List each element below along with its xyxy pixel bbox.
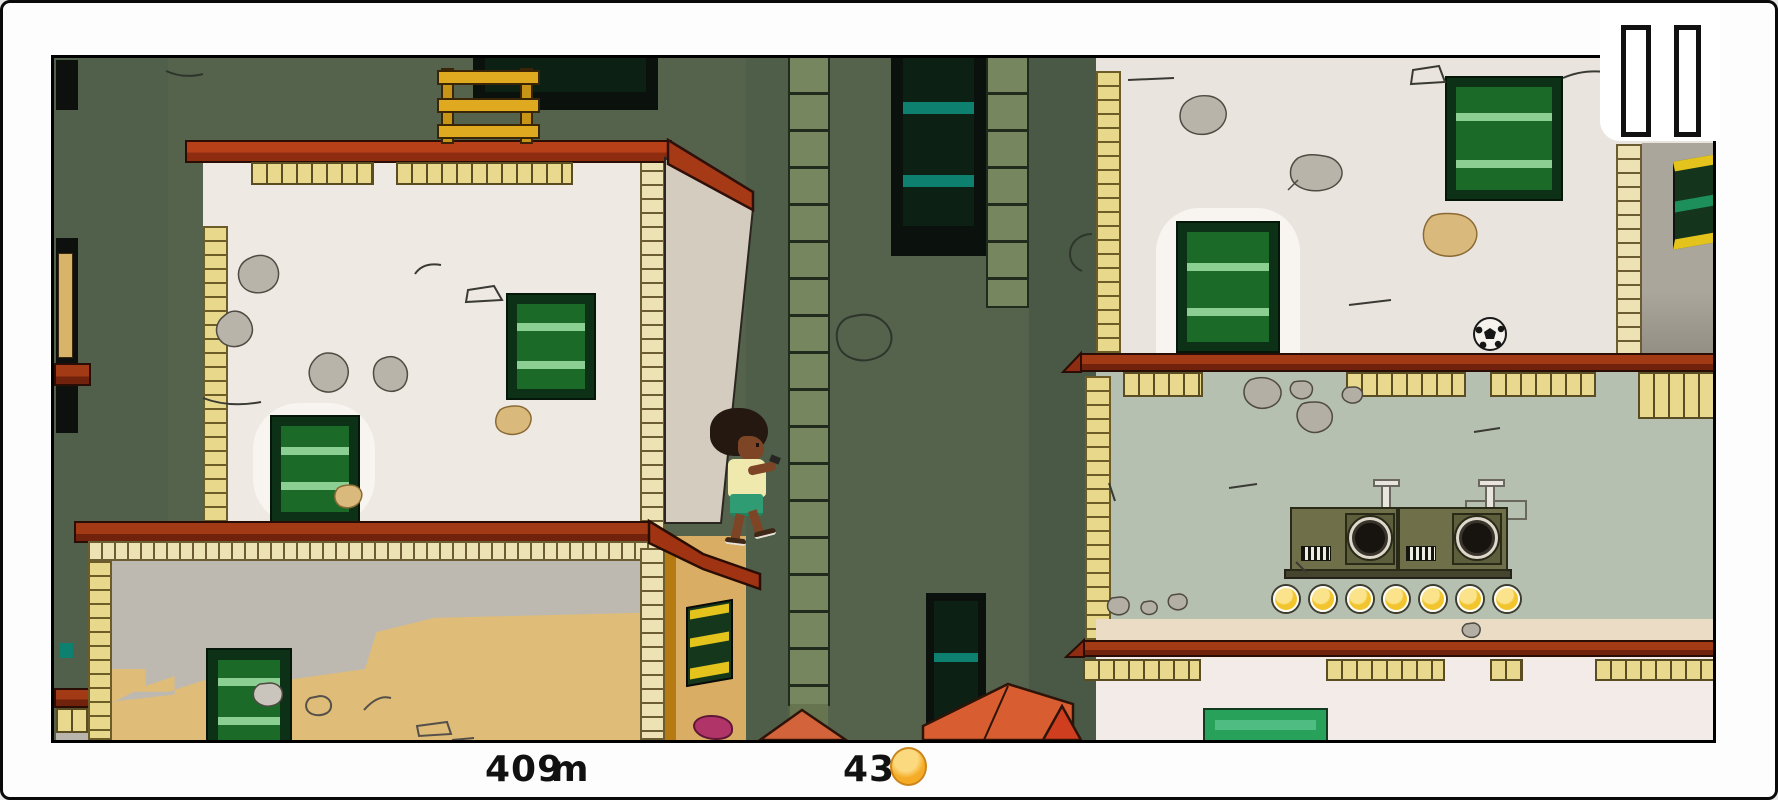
game-viewport[interactable] <box>51 55 1716 743</box>
pebble <box>1462 623 1480 637</box>
stone-outline-arc <box>1070 234 1092 271</box>
pebble <box>1141 601 1157 614</box>
stone <box>217 311 253 347</box>
stone <box>238 255 278 292</box>
squiggle <box>1128 78 1174 80</box>
pause-button[interactable] <box>1600 3 1720 141</box>
stone <box>253 683 282 706</box>
character-sandal <box>725 537 747 547</box>
pebble <box>1168 594 1187 610</box>
pause-icon <box>1674 25 1701 137</box>
squiggle <box>1109 428 1500 572</box>
stone <box>1297 402 1332 432</box>
squiggle <box>364 697 474 740</box>
squiggle <box>166 71 203 76</box>
pebble <box>1108 597 1130 615</box>
stone <box>309 353 348 392</box>
stone <box>1180 96 1226 135</box>
coin <box>1494 586 1520 612</box>
rooftop-small <box>760 710 846 740</box>
tan-patch <box>496 406 531 434</box>
squiggle <box>1349 300 1391 305</box>
coin <box>1347 586 1373 612</box>
stone <box>1342 387 1362 403</box>
tan-patch <box>1423 213 1476 256</box>
coin <box>1273 586 1299 612</box>
soccer-ball <box>1472 316 1508 352</box>
stone <box>1288 155 1342 191</box>
coin <box>1457 586 1483 612</box>
character-eye <box>756 443 759 447</box>
stone <box>373 357 407 392</box>
tan-patch <box>335 485 362 508</box>
coin-count: 43 <box>843 749 895 790</box>
ledge-tip <box>1066 640 1084 657</box>
doodle-layer <box>54 58 1716 740</box>
squiggle-trapezoid <box>466 286 502 302</box>
coin <box>1310 586 1336 612</box>
character-face <box>738 436 764 461</box>
stone <box>1290 381 1312 399</box>
coin <box>1420 586 1446 612</box>
ledge-tip <box>1063 353 1081 372</box>
coin-icon <box>890 747 927 786</box>
pause-icon <box>1621 25 1651 137</box>
squiggle <box>203 398 261 404</box>
stone <box>1244 378 1281 409</box>
game-window: 409 m 43 <box>0 0 1778 800</box>
stone-outline <box>837 315 892 361</box>
character <box>706 406 786 548</box>
stone-outline <box>306 696 331 715</box>
squiggle <box>415 264 441 274</box>
squiggle-trapezoid <box>1411 66 1445 84</box>
distance-unit: m <box>551 749 590 790</box>
